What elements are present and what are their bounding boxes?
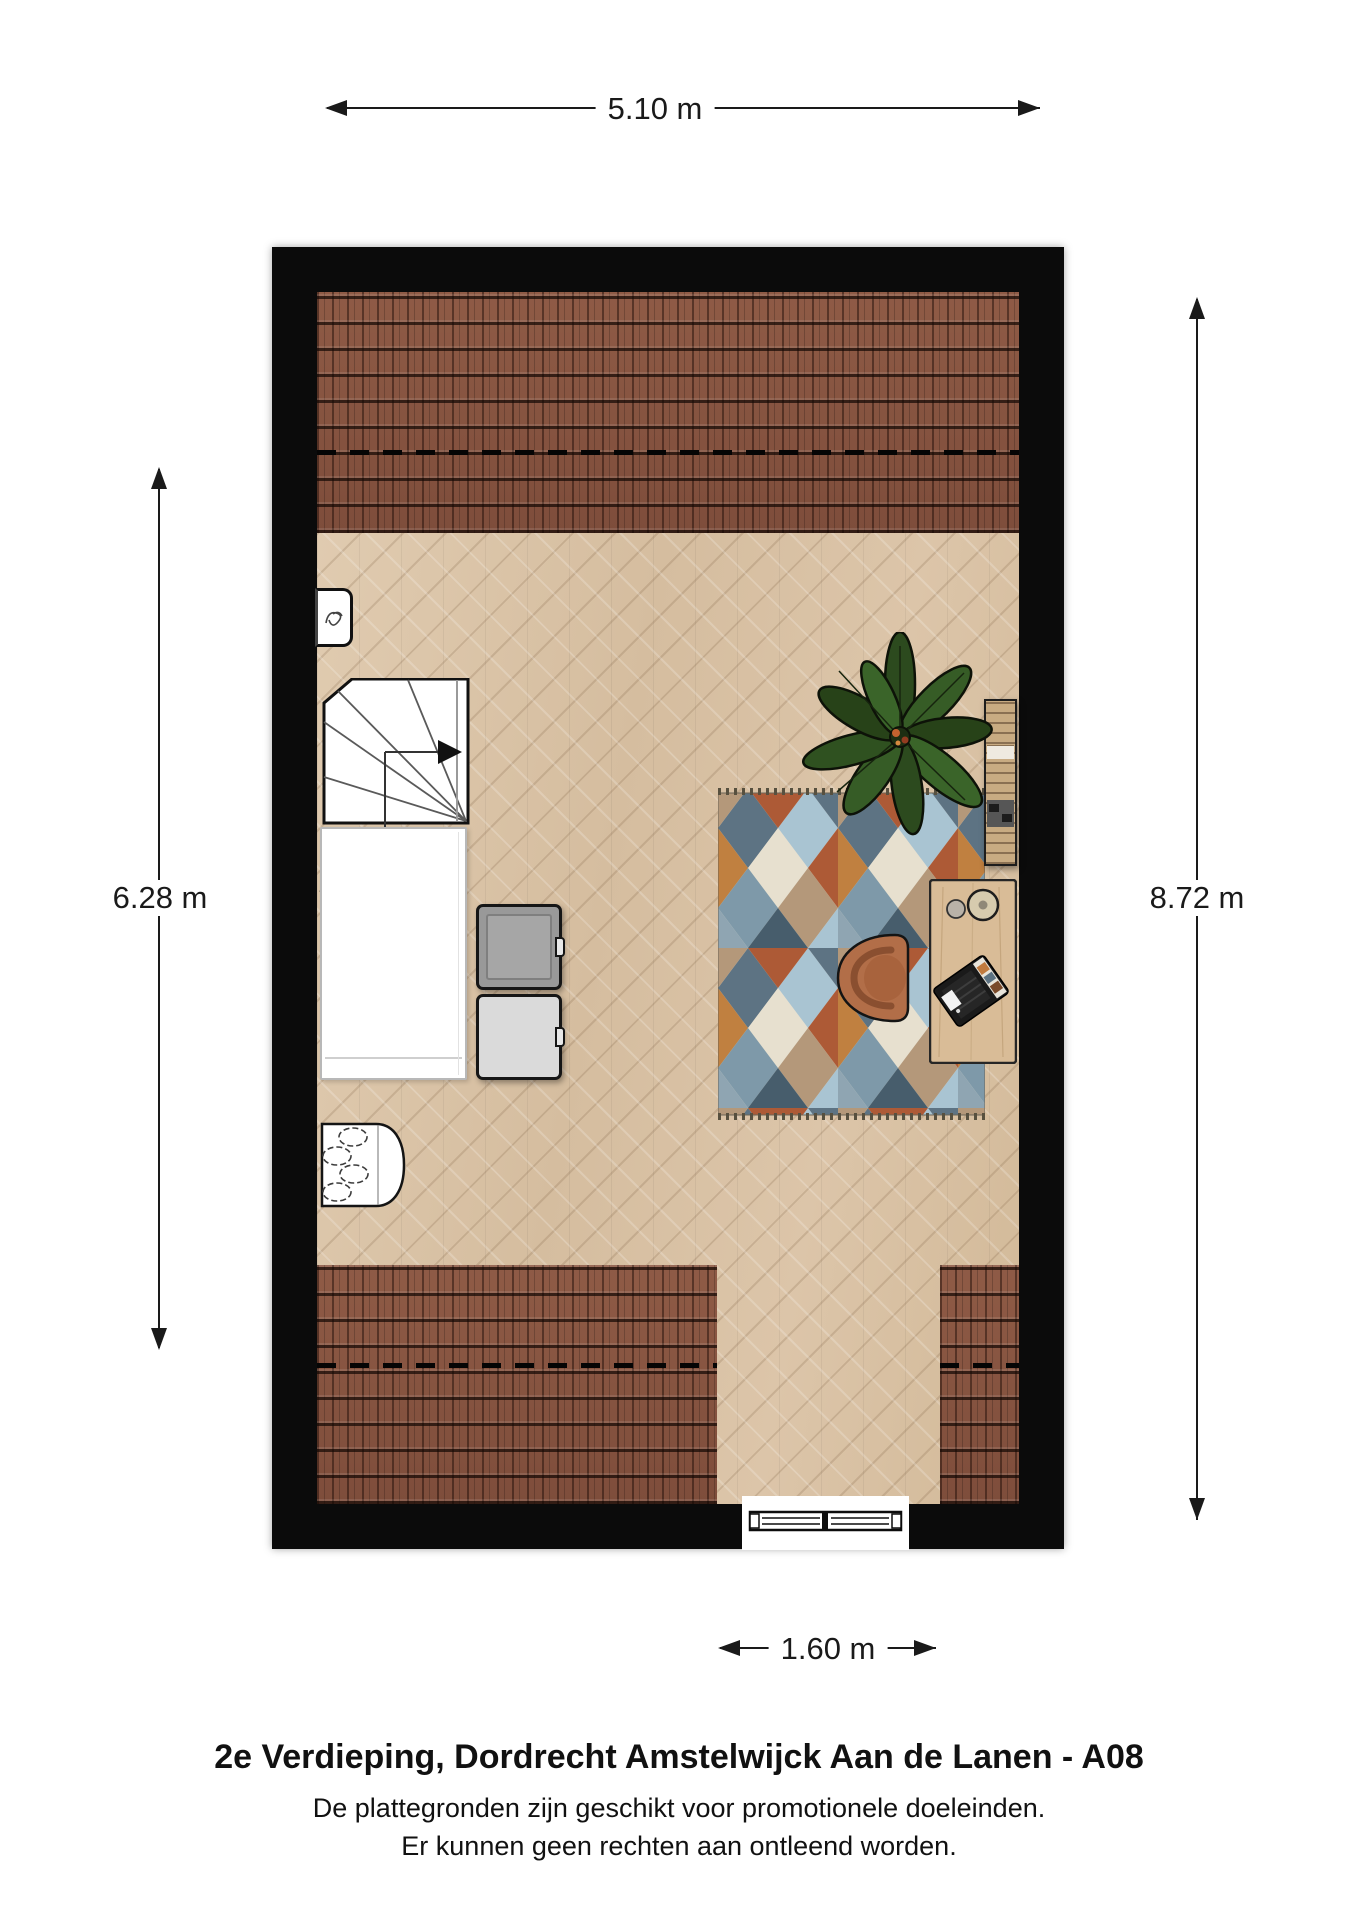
dimension-bottom-label: 1.60 m xyxy=(769,1631,888,1667)
desk-drawing xyxy=(929,879,1017,1064)
cabinet-handle xyxy=(555,937,565,957)
arrowhead-left-icon xyxy=(325,100,347,116)
arrowhead-down-icon xyxy=(1189,1498,1205,1520)
desk-chair xyxy=(833,931,917,1030)
cabinet-handle xyxy=(555,1027,565,1047)
arrowhead-right-icon xyxy=(914,1640,936,1656)
arrowhead-up-icon xyxy=(151,467,167,489)
window-icon xyxy=(742,1496,909,1550)
plant-drawing xyxy=(795,632,1005,842)
headroom-dashed-line-bottom-left xyxy=(317,1363,717,1368)
floor-plan-page: 5.10 m 6.28 m 8.72 m 1.60 m xyxy=(0,0,1358,1920)
arrowhead-left-icon xyxy=(718,1640,740,1656)
desk-lamp-base-icon xyxy=(947,900,965,918)
bed xyxy=(320,827,467,1080)
window-opening xyxy=(742,1496,909,1550)
rug-fringe-bottom xyxy=(718,1113,985,1120)
cabinet-light xyxy=(476,994,562,1080)
sloped-roof-area-bottom-right xyxy=(940,1265,1019,1504)
fixture-sketch-icon xyxy=(318,591,350,644)
stair-direction-arrow-icon xyxy=(438,740,462,764)
wall-fixture xyxy=(315,588,353,647)
disclaimer-line-1: De plattegronden zijn geschikt voor prom… xyxy=(0,1793,1358,1824)
washbasin-drawing xyxy=(320,1122,406,1208)
arrowhead-right-icon xyxy=(1018,100,1040,116)
desk-chair-drawing xyxy=(833,931,917,1025)
headroom-dashed-line-bottom-right xyxy=(940,1363,1019,1368)
desk xyxy=(929,879,1017,1069)
cabinet-dark-top xyxy=(486,914,552,980)
sloped-roof-area-top xyxy=(317,292,1019,533)
dimension-right-label: 8.72 m xyxy=(1138,880,1257,916)
disclaimer-line-2: Er kunnen geen rechten aan ontleend word… xyxy=(0,1831,1358,1862)
bed-sheet-edge xyxy=(458,832,459,1075)
washbasin xyxy=(320,1122,406,1213)
bed-foldline xyxy=(325,1057,462,1059)
dimension-top-label: 5.10 m xyxy=(596,91,715,127)
arrowhead-up-icon xyxy=(1189,297,1205,319)
sloped-roof-area-bottom-left xyxy=(317,1265,717,1504)
floorplan-title: 2e Verdieping, Dordrecht Amstelwijck Aan… xyxy=(0,1738,1358,1777)
plant xyxy=(795,632,1005,847)
arrowhead-down-icon xyxy=(151,1328,167,1350)
dimension-left-label: 6.28 m xyxy=(101,880,220,916)
headroom-dashed-line-top xyxy=(317,450,1019,455)
cabinet-dark xyxy=(476,904,562,990)
